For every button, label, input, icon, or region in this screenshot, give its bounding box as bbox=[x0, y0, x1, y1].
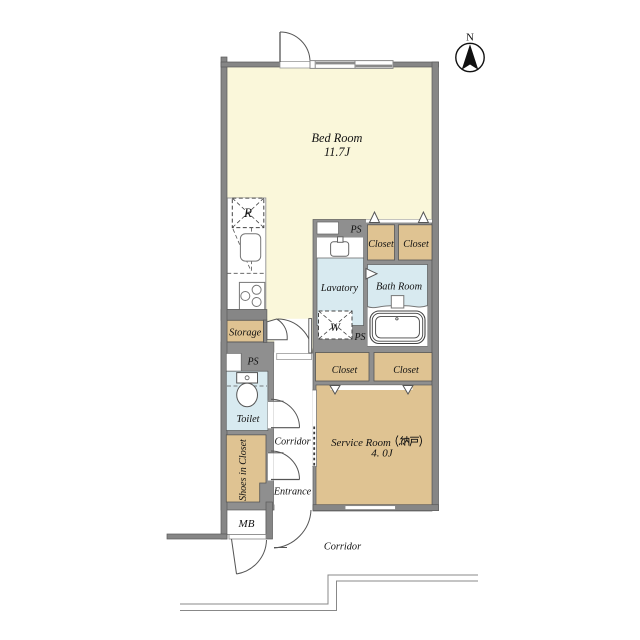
svg-text:W: W bbox=[330, 320, 341, 334]
svg-text:R: R bbox=[243, 205, 252, 220]
svg-text:Entrance: Entrance bbox=[273, 487, 312, 498]
svg-text:Bath Room: Bath Room bbox=[376, 282, 422, 293]
svg-text:Corridor: Corridor bbox=[274, 437, 310, 448]
svg-text:11.7J: 11.7J bbox=[324, 145, 351, 159]
svg-text:Corridor: Corridor bbox=[324, 542, 362, 553]
svg-text:Closet: Closet bbox=[403, 239, 429, 250]
svg-text:PS: PS bbox=[353, 332, 365, 343]
svg-text:Storage: Storage bbox=[229, 328, 261, 339]
svg-text:4. 0J: 4. 0J bbox=[371, 448, 394, 460]
svg-text:Toilet: Toilet bbox=[236, 414, 260, 425]
svg-text:Closet: Closet bbox=[368, 239, 394, 250]
svg-text:Lavatory: Lavatory bbox=[320, 283, 359, 294]
svg-text:Closet: Closet bbox=[332, 365, 358, 376]
svg-text:MB: MB bbox=[238, 518, 255, 530]
svg-text:PS: PS bbox=[246, 357, 258, 368]
svg-text:PS: PS bbox=[349, 225, 361, 236]
svg-text:Shoes in Closet: Shoes in Closet bbox=[238, 439, 249, 501]
svg-text:Bed Room: Bed Room bbox=[312, 131, 363, 145]
svg-text:N: N bbox=[466, 32, 474, 44]
svg-text:Closet: Closet bbox=[393, 365, 419, 376]
